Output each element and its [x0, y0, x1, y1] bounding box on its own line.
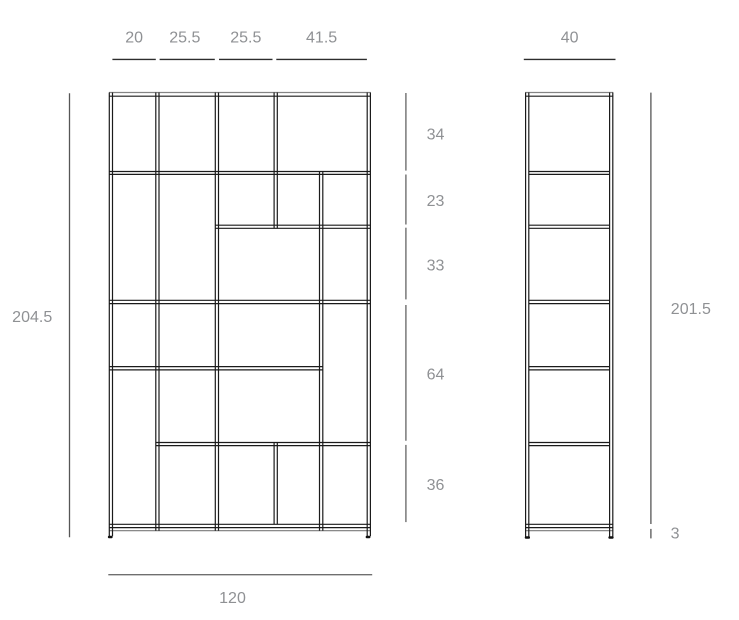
svg-text:201.5: 201.5 [671, 301, 711, 318]
svg-text:33: 33 [427, 258, 445, 275]
svg-text:40: 40 [561, 30, 579, 47]
svg-text:64: 64 [427, 366, 445, 383]
svg-text:120: 120 [219, 590, 246, 607]
svg-text:25.5: 25.5 [169, 30, 200, 47]
svg-text:20: 20 [125, 30, 143, 47]
svg-text:34: 34 [427, 127, 445, 144]
svg-text:41.5: 41.5 [306, 30, 337, 47]
svg-text:3: 3 [671, 526, 680, 543]
svg-text:23: 23 [427, 193, 445, 210]
svg-text:204.5: 204.5 [12, 309, 52, 326]
svg-text:36: 36 [427, 477, 445, 494]
svg-text:25.5: 25.5 [230, 30, 261, 47]
